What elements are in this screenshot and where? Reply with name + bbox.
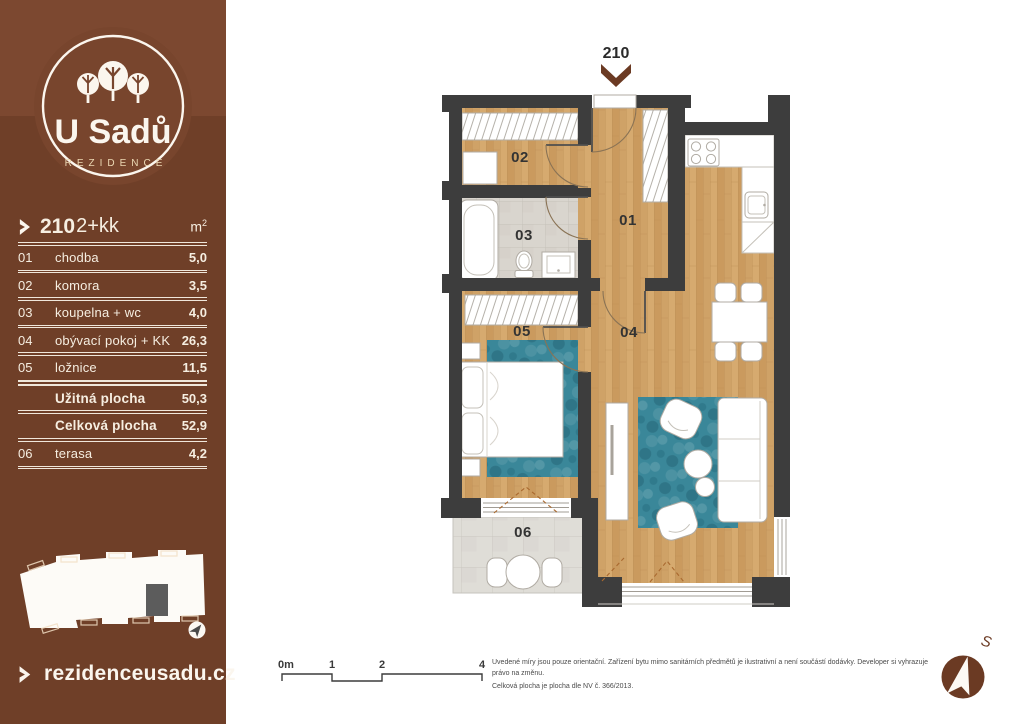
entrance-door-frame — [594, 95, 636, 108]
sidebar: U Sadů REZIDENCE 210 2+kk m2 01 chodba 5… — [0, 0, 226, 724]
total-row: Užitná plocha 50,3 — [18, 386, 207, 410]
washing-machine — [463, 152, 497, 184]
tv — [611, 425, 614, 475]
tv-stand — [606, 403, 628, 520]
coffee-table — [684, 450, 712, 478]
terrace-chair — [487, 558, 507, 587]
floor-plan: 01 02 03 04 05 06 210 — [430, 40, 810, 610]
bedroom-furniture — [458, 343, 563, 476]
room-label-02: 02 — [511, 149, 529, 166]
building-footprint-map — [6, 546, 218, 646]
compass-icon: S — [933, 628, 1008, 708]
room-label-04: 04 — [620, 324, 638, 341]
nightstand — [460, 343, 480, 359]
svg-text:4: 4 — [479, 659, 486, 671]
scale-bar: 0m 1 2 4 — [272, 650, 492, 686]
terrace-chair — [542, 558, 562, 587]
dining-chair — [741, 283, 762, 302]
pillow — [462, 413, 483, 454]
terrace-furniture — [487, 555, 562, 589]
building-outline — [20, 550, 205, 628]
compass-north-label: S — [979, 632, 993, 651]
unit-header-row: 210 2+kk m2 — [18, 211, 207, 242]
nightstand — [460, 459, 480, 476]
svg-text:0m: 0m — [278, 659, 294, 671]
svg-text:1: 1 — [329, 659, 335, 671]
table-row: 04 obývací pokoj + KK 26,3 — [18, 328, 207, 352]
chevron-right-icon — [18, 665, 33, 684]
logo-title: U Sadů — [54, 113, 171, 151]
table-row: 05 ložnice 11,5 — [18, 356, 207, 380]
table-row: 01 chodba 5,0 — [18, 246, 207, 270]
entrance-marker: 210 — [601, 45, 631, 87]
divider — [18, 466, 207, 470]
table-row: 03 koupelna + wc 4,0 — [18, 301, 207, 325]
coffee-table — [696, 478, 715, 497]
room-label-03: 03 — [515, 227, 533, 244]
floorplan-sheet: U Sadů REZIDENCE 210 2+kk m2 01 chodba 5… — [0, 0, 1024, 724]
brand-logo: U Sadů REZIDENCE — [25, 13, 201, 205]
table-row: 06 terasa 4,2 — [18, 442, 207, 466]
pillow — [462, 367, 483, 408]
table-row: 02 komora 3,5 — [18, 273, 207, 297]
compass-icon — [189, 621, 206, 638]
website-link[interactable]: rezidenceusadu.cz — [18, 662, 236, 686]
area-unit-label: m2 — [190, 218, 207, 235]
terrace-table — [506, 555, 540, 589]
dining-table — [712, 302, 767, 342]
dining-chair — [715, 342, 736, 361]
entrance-arrow-icon — [601, 64, 631, 87]
room-label-01: 01 — [619, 212, 637, 229]
room-area-table: 210 2+kk m2 01 chodba 5,0 02 komora 3,5 … — [18, 211, 207, 469]
disclaimer-text: Uvedené míry jsou pouze orientační. Zaří… — [492, 657, 944, 693]
dining-chair — [715, 283, 736, 302]
website-url: rezidenceusadu.cz — [44, 662, 236, 686]
room-label-05: 05 — [513, 323, 531, 340]
total-row: Celková plocha 52,9 — [18, 414, 207, 438]
unit-layout: 2+kk — [18, 215, 177, 238]
highlighted-unit — [146, 584, 168, 616]
svg-text:2: 2 — [379, 659, 385, 671]
entrance-unit-number: 210 — [603, 45, 630, 62]
room-label-06: 06 — [514, 524, 532, 541]
logo-tagline: REZIDENCE — [65, 158, 168, 169]
dining-chair — [741, 342, 762, 361]
